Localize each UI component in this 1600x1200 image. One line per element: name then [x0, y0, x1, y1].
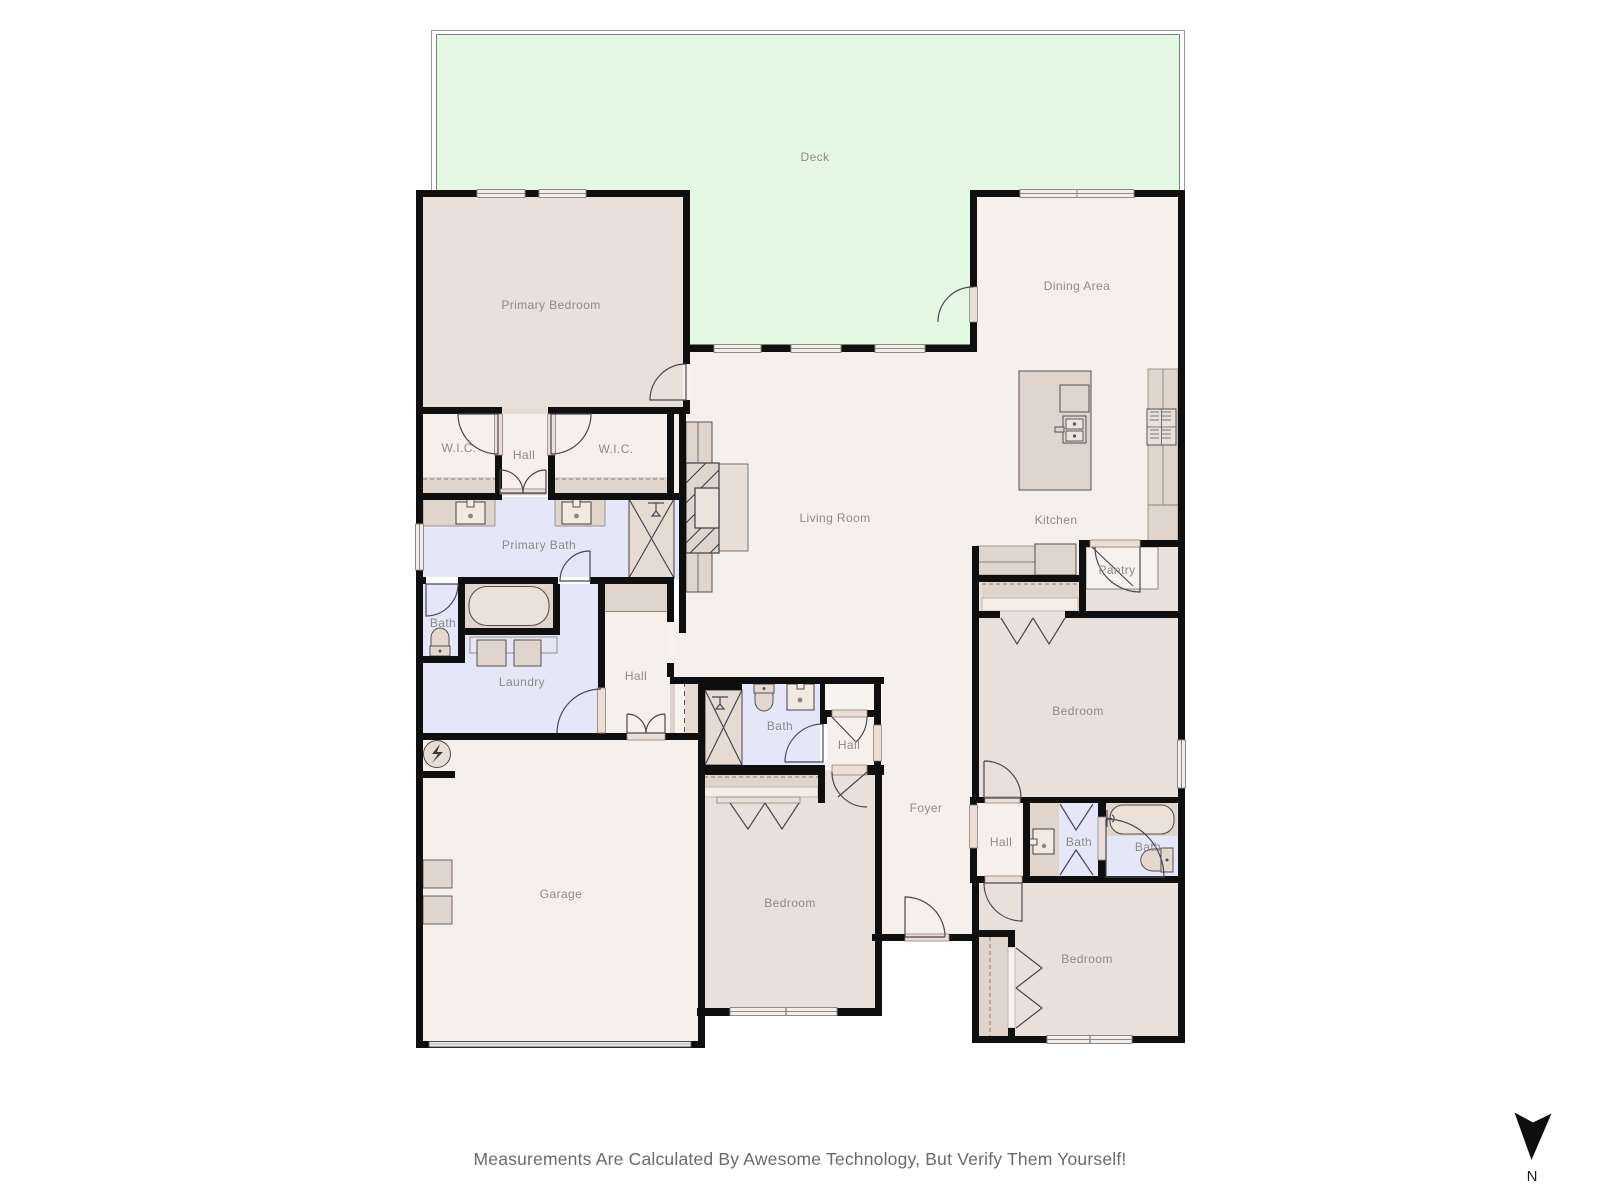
svg-text:Bedroom: Bedroom — [1061, 952, 1113, 966]
svg-text:Laundry: Laundry — [499, 675, 545, 689]
svg-text:Living Room: Living Room — [799, 511, 870, 525]
svg-text:Foyer: Foyer — [910, 801, 943, 815]
svg-text:Hall: Hall — [990, 835, 1012, 849]
svg-text:Hall: Hall — [513, 448, 535, 462]
svg-text:Bedroom: Bedroom — [1052, 704, 1104, 718]
svg-text:Bath: Bath — [1135, 840, 1161, 854]
svg-text:N: N — [1527, 1168, 1538, 1185]
svg-text:Pantry: Pantry — [1098, 563, 1135, 577]
svg-text:Hall: Hall — [625, 669, 647, 683]
svg-text:W.I.C.: W.I.C. — [441, 441, 476, 455]
svg-text:Bath: Bath — [430, 616, 456, 630]
svg-text:Garage: Garage — [540, 887, 582, 901]
svg-text:Bedroom: Bedroom — [764, 896, 816, 910]
svg-text:W.I.C.: W.I.C. — [598, 442, 633, 456]
svg-text:Kitchen: Kitchen — [1035, 513, 1078, 527]
svg-text:Primary Bedroom: Primary Bedroom — [501, 298, 600, 312]
svg-text:Bath: Bath — [1066, 835, 1092, 849]
svg-text:Measurements Are Calculated By: Measurements Are Calculated By Awesome T… — [473, 1149, 1126, 1169]
svg-text:Deck: Deck — [801, 150, 831, 164]
svg-text:Bath: Bath — [767, 719, 793, 733]
svg-text:Primary Bath: Primary Bath — [502, 538, 576, 552]
svg-text:Dining Area: Dining Area — [1044, 279, 1110, 293]
svg-text:Hall: Hall — [838, 738, 860, 752]
